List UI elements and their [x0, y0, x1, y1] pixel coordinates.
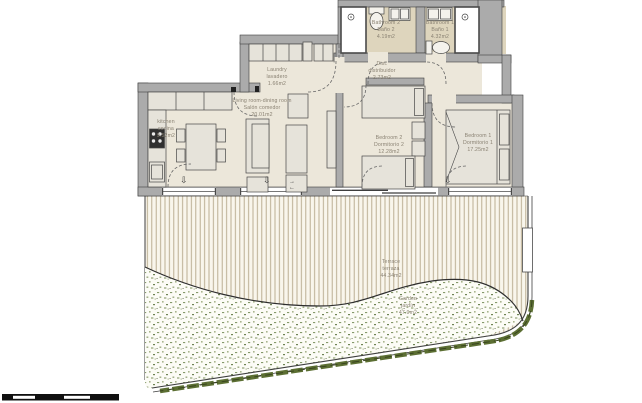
washer-icon	[303, 42, 312, 61]
armchair	[286, 125, 307, 173]
bedroom1-window	[448, 188, 512, 195]
laundry-furniture	[249, 42, 333, 61]
shower-icon	[341, 7, 366, 53]
stove-icon	[150, 129, 165, 148]
scale-bar	[2, 394, 119, 401]
toilet-icon	[426, 41, 432, 54]
tv-unit	[327, 111, 336, 168]
nightstand	[412, 122, 425, 139]
nightstand	[412, 141, 425, 156]
dining-table	[186, 124, 216, 170]
exterior-wall-stub	[478, 0, 502, 62]
floor-plan-page: kitchen cocina 9.52m2 Living room-dining…	[0, 0, 642, 403]
bedroom1-furniture	[446, 110, 510, 184]
coffee-table	[247, 177, 268, 192]
floor-plan-drawing	[0, 0, 642, 403]
kitchen-window	[162, 188, 216, 195]
armchair	[288, 94, 308, 118]
windows	[162, 188, 512, 195]
shower-icon	[455, 7, 479, 53]
terrace-gate	[523, 228, 533, 272]
